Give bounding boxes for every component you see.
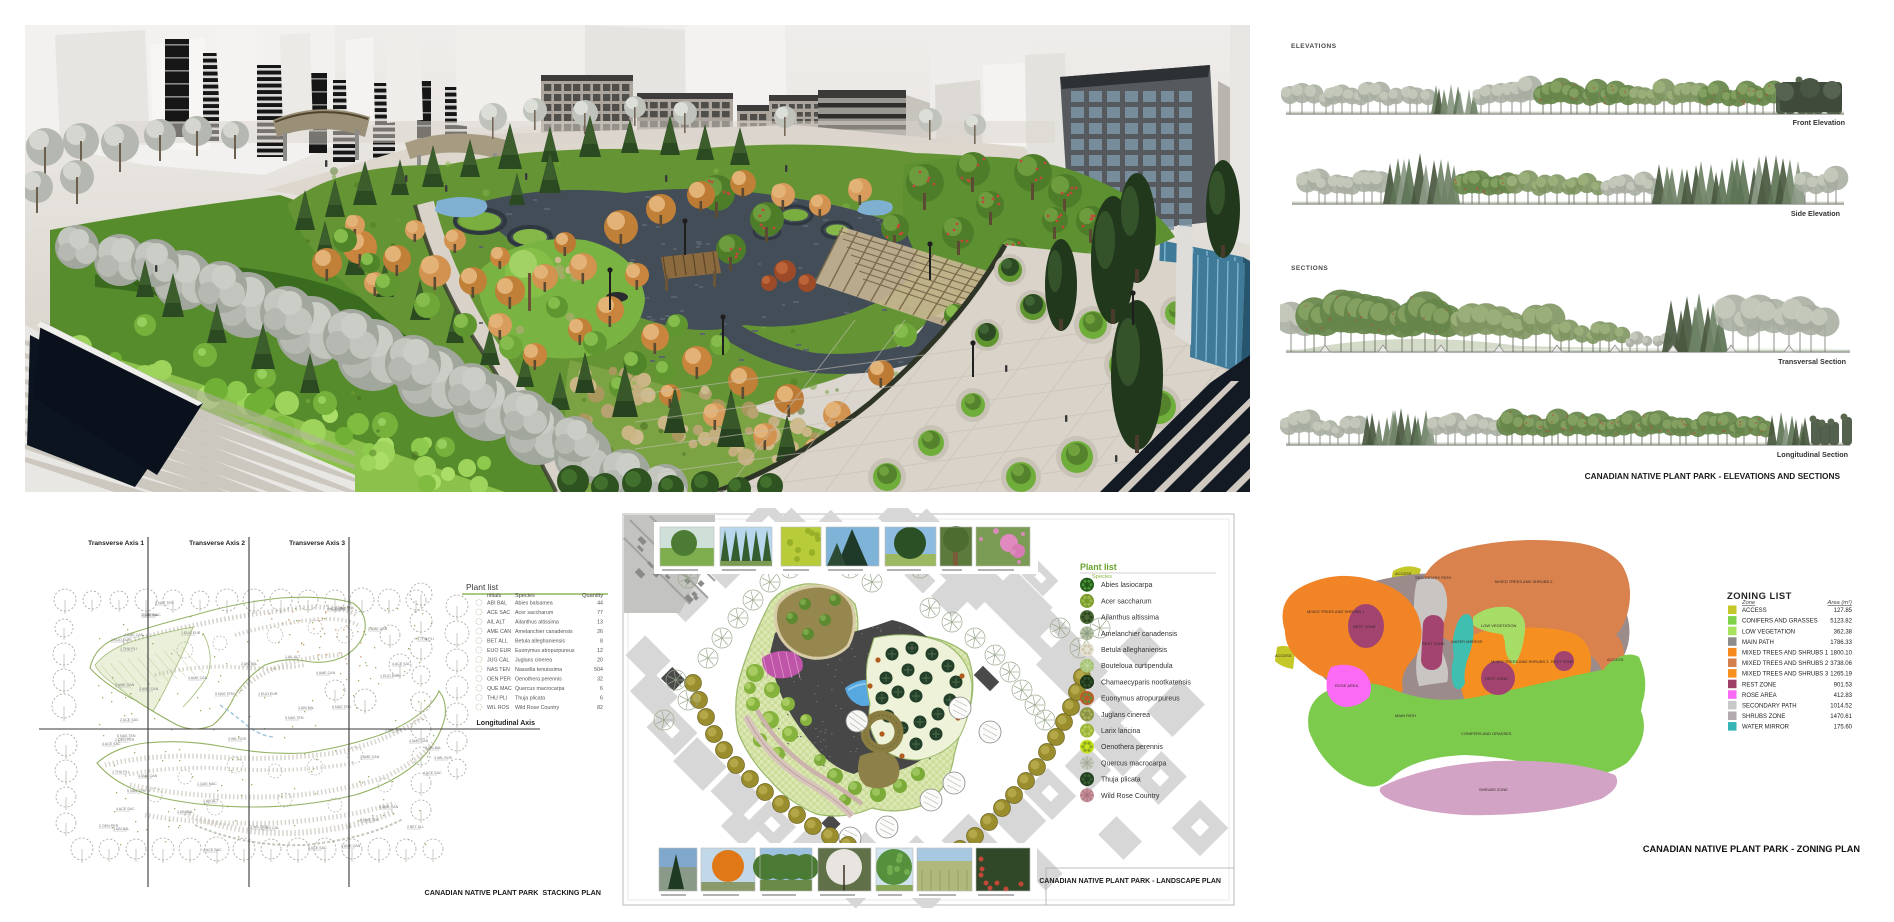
svg-text:2 OEN PER: 2 OEN PER: [99, 824, 119, 828]
svg-text:4 ACE SAC: 4 ACE SAC: [116, 807, 135, 811]
svg-text:MIXED TREES AND SHRUBS 2: MIXED TREES AND SHRUBS 2: [1495, 579, 1553, 584]
svg-text:3 ABI BAL: 3 ABI BAL: [425, 746, 441, 750]
svg-text:2 ACE SAC: 2 ACE SAC: [120, 718, 139, 722]
svg-text:ACCESS: ACCESS: [1395, 571, 1412, 576]
svg-text:ACE SAC: ACE SAC: [487, 610, 510, 616]
svg-text:4 ACE SAC: 4 ACE SAC: [102, 742, 121, 746]
svg-text:MIXED TREES AND SHRUBS 3: MIXED TREES AND SHRUBS 3: [1742, 672, 1829, 678]
svg-text:QUE MAC: QUE MAC: [487, 686, 512, 692]
svg-text:Quercus macrocarpa: Quercus macrocarpa: [1101, 760, 1166, 767]
svg-text:4 AME CAN: 4 AME CAN: [124, 633, 144, 637]
svg-text:Abies balsamea: Abies balsamea: [515, 601, 553, 607]
svg-text:REST ZONE: REST ZONE: [1742, 682, 1776, 688]
svg-text:4 ACE SAC: 4 ACE SAC: [203, 848, 222, 852]
svg-text:1470.61: 1470.61: [1830, 714, 1852, 720]
svg-text:ROSE AREA: ROSE AREA: [1742, 693, 1777, 699]
svg-text:Acer saccharum: Acer saccharum: [515, 610, 554, 616]
svg-text:3 WIL ROS: 3 WIL ROS: [228, 737, 247, 741]
svg-text:5 NAS TEN: 5 NAS TEN: [285, 716, 304, 720]
svg-text:Amelanchier canadensis: Amelanchier canadensis: [515, 629, 573, 635]
svg-text:EUO EUR: EUO EUR: [487, 648, 511, 654]
svg-text:Thuja plicata: Thuja plicata: [1101, 777, 1141, 784]
svg-text:5 NAS TEN: 5 NAS TEN: [155, 601, 174, 605]
svg-text:1800.10: 1800.10: [1830, 651, 1852, 657]
svg-text:Side Elevation: Side Elevation: [1791, 209, 1840, 218]
svg-text:Transverse Axis 2: Transverse Axis 2: [189, 540, 245, 547]
svg-text:1 EUO EUR: 1 EUO EUR: [258, 692, 278, 696]
svg-text:SHRUBS ZONE: SHRUBS ZONE: [1742, 714, 1785, 720]
svg-text:Thuja plicata: Thuja plicata: [515, 696, 545, 702]
svg-text:3 AME CAN: 3 AME CAN: [368, 627, 388, 631]
svg-text:1 EUO EUR: 1 EUO EUR: [111, 638, 131, 642]
svg-text:5 NAS TEN: 5 NAS TEN: [215, 692, 234, 696]
svg-text:MIXED TREES AND SHRUBS 3: MIXED TREES AND SHRUBS 3: [1491, 659, 1549, 664]
svg-text:1 THU PLI: 1 THU PLI: [120, 647, 137, 651]
svg-text:8: 8: [600, 639, 603, 645]
svg-text:REST ZONE: REST ZONE: [1551, 659, 1574, 664]
svg-text:WATER MIRROR: WATER MIRROR: [1451, 639, 1482, 644]
svg-text:ZONING LIST: ZONING LIST: [1727, 590, 1792, 601]
svg-text:5123.82: 5123.82: [1830, 619, 1852, 625]
svg-text:Species: Species: [515, 593, 535, 599]
svg-text:CANADIAN NATIVE PLANT PARK - L: CANADIAN NATIVE PLANT PARK - LANDSCAPE P…: [1039, 878, 1221, 885]
svg-text:1 THU PLI: 1 THU PLI: [112, 770, 129, 774]
svg-text:Transversal Section: Transversal Section: [1778, 357, 1846, 366]
svg-text:1 THU PLI: 1 THU PLI: [417, 637, 434, 641]
svg-text:6 NAS TEN: 6 NAS TEN: [360, 818, 379, 822]
svg-text:AME CAN: AME CAN: [487, 629, 511, 635]
svg-text:4 AME CAN: 4 AME CAN: [316, 671, 336, 675]
svg-text:CANADIAN NATIVE PLANT PARK - Z: CANADIAN NATIVE PLANT PARK - ZONING PLAN: [1643, 844, 1860, 854]
svg-text:Nassella tenuissima: Nassella tenuissima: [515, 667, 562, 673]
svg-text:nitials: nitials: [487, 593, 502, 599]
svg-text:Oenothera perennis: Oenothera perennis: [515, 677, 562, 683]
svg-text:13: 13: [597, 620, 603, 626]
svg-text:Juglans cinerea: Juglans cinerea: [1101, 712, 1150, 719]
svg-text:Euonymus atropurpureus: Euonymus atropurpureus: [1101, 696, 1180, 703]
svg-text:Plant list: Plant list: [1080, 562, 1117, 572]
svg-text:REST ZONE: REST ZONE: [1485, 676, 1508, 681]
svg-text:1 EUO EUR: 1 EUO EUR: [181, 631, 201, 635]
svg-text:Area (m²): Area (m²): [1827, 600, 1853, 606]
svg-text:REST ZONE: REST ZONE: [1422, 641, 1445, 646]
svg-text:Bouteloua curtipendula: Bouteloua curtipendula: [1101, 663, 1173, 670]
svg-text:Quercus macrocarpa: Quercus macrocarpa: [515, 686, 565, 692]
svg-text:5 NAS TEN: 5 NAS TEN: [127, 789, 146, 793]
svg-text:SECONDARY PATH: SECONDARY PATH: [1742, 704, 1797, 710]
svg-text:32: 32: [597, 677, 603, 683]
svg-text:44: 44: [597, 601, 603, 607]
svg-text:3 WIL ROS: 3 WIL ROS: [434, 756, 453, 760]
svg-text:SECTIONS: SECTIONS: [1291, 265, 1328, 272]
svg-text:Quantity: Quantity: [582, 593, 603, 599]
svg-text:412.83: 412.83: [1834, 693, 1853, 699]
svg-text:NAS TEN: NAS TEN: [487, 667, 510, 673]
svg-text:Chamaecyparis nootkatensis: Chamaecyparis nootkatensis: [1101, 679, 1191, 686]
svg-text:Transverse Axis 1: Transverse Axis 1: [88, 540, 144, 547]
svg-text:CANADIAN NATIVE PLANT PARK - E: CANADIAN NATIVE PLANT PARK - ELEVATIONS …: [1585, 471, 1841, 481]
svg-text:4 AME CAN: 4 AME CAN: [409, 739, 429, 743]
svg-text:3 AME CAN: 3 AME CAN: [360, 755, 380, 759]
svg-text:Wild Rose Country: Wild Rose Country: [515, 705, 560, 711]
svg-text:REST ZONE: REST ZONE: [1353, 624, 1376, 629]
svg-text:4 ACE SAC: 4 ACE SAC: [392, 662, 411, 666]
svg-text:901.53: 901.53: [1834, 682, 1853, 688]
svg-text:BET ALL: BET ALL: [487, 639, 508, 645]
svg-text:3 AME CAN: 3 AME CAN: [379, 805, 399, 809]
svg-text:Plant list: Plant list: [466, 582, 499, 592]
svg-text:1 QUE MAC: 1 QUE MAC: [197, 782, 217, 786]
svg-text:Species: Species: [1092, 574, 1112, 580]
svg-text:LOW VEGETATION: LOW VEGETATION: [1742, 629, 1795, 635]
svg-text:1 AIL ALT: 1 AIL ALT: [285, 655, 301, 659]
svg-text:Betula alleghaniensis: Betula alleghaniensis: [515, 639, 565, 645]
svg-text:Abies lasiocarpa: Abies lasiocarpa: [1101, 582, 1152, 589]
svg-text:175.60: 175.60: [1834, 725, 1853, 731]
svg-text:Transverse Axis 3: Transverse Axis 3: [289, 540, 345, 547]
svg-text:THU PLI: THU PLI: [487, 696, 507, 702]
svg-text:Larix laricina: Larix laricina: [1101, 728, 1140, 735]
svg-text:4 AME CAN: 4 AME CAN: [188, 676, 208, 680]
svg-text:OEN PER: OEN PER: [487, 677, 511, 683]
svg-text:6: 6: [600, 696, 603, 702]
svg-text:Juglans cinerea: Juglans cinerea: [515, 658, 552, 664]
svg-text:4 ACE SAC: 4 ACE SAC: [423, 771, 442, 775]
svg-text:3 ABI BAL: 3 ABI BAL: [298, 706, 314, 710]
svg-text:SHRUBS ZONE: SHRUBS ZONE: [1479, 787, 1508, 792]
svg-text:ELEVATIONS: ELEVATIONS: [1291, 43, 1337, 50]
svg-text:SECONDARY PATH: SECONDARY PATH: [1415, 575, 1451, 580]
svg-text:1 EUO EUR: 1 EUO EUR: [380, 674, 400, 678]
svg-text:1 QUE MAC: 1 QUE MAC: [141, 613, 161, 617]
svg-text:3 AME CAN: 3 AME CAN: [139, 687, 159, 691]
svg-text:JUG CAL: JUG CAL: [487, 658, 509, 664]
svg-text:Acer saccharum: Acer saccharum: [1101, 598, 1152, 605]
svg-text:MIXED TREES AND SHRUBS 1: MIXED TREES AND SHRUBS 1: [1742, 651, 1829, 657]
svg-text:MIXED TREES AND SHRUBS 2: MIXED TREES AND SHRUBS 2: [1742, 661, 1829, 667]
svg-text:Ailanthus altissima: Ailanthus altissima: [515, 620, 559, 626]
svg-text:504: 504: [594, 667, 603, 673]
svg-text:82: 82: [597, 705, 603, 711]
svg-text:Amelanchier canadensis: Amelanchier canadensis: [1101, 631, 1178, 638]
svg-text:ABI BAL: ABI BAL: [487, 601, 507, 607]
svg-text:LOW VEGETATION: LOW VEGETATION: [1481, 623, 1517, 628]
svg-text:ACCESS: ACCESS: [1742, 608, 1767, 614]
svg-text:ACCESS: ACCESS: [1607, 657, 1624, 662]
svg-text:MAIN PATH: MAIN PATH: [1742, 640, 1774, 646]
svg-text:MAIN PATH: MAIN PATH: [1395, 713, 1416, 718]
svg-text:WATER MIRROR: WATER MIRROR: [1742, 725, 1790, 731]
svg-text:CONIFERS AND GRASSES: CONIFERS AND GRASSES: [1461, 731, 1512, 736]
svg-text:Zone: Zone: [1741, 600, 1756, 606]
svg-text:6: 6: [600, 686, 603, 692]
svg-text:4 ACE SAC: 4 ACE SAC: [308, 846, 327, 850]
svg-text:Longitudinal Axis: Longitudinal Axis: [477, 720, 536, 727]
svg-text:127.85: 127.85: [1834, 608, 1853, 614]
svg-text:4 ACE SAC: 4 ACE SAC: [327, 607, 346, 611]
svg-text:2 OEN PER: 2 OEN PER: [115, 738, 135, 742]
svg-text:ACCESS: ACCESS: [1275, 653, 1292, 658]
svg-text:Longitudinal Section: Longitudinal Section: [1777, 450, 1848, 459]
svg-text:Betula alleghaniensis: Betula alleghaniensis: [1101, 647, 1168, 654]
svg-text:5 NAS TEN: 5 NAS TEN: [332, 705, 351, 709]
svg-text:1014.52: 1014.52: [1830, 704, 1852, 710]
svg-text:Ailanthus altissima: Ailanthus altissima: [1101, 615, 1159, 622]
svg-text:2 JUG CAL: 2 JUG CAL: [261, 826, 279, 830]
svg-text:WIL ROS: WIL ROS: [487, 705, 510, 711]
svg-text:1 AIL ALT: 1 AIL ALT: [203, 799, 219, 803]
svg-text:26: 26: [597, 629, 603, 635]
svg-text:Euonymus atropurpureus: Euonymus atropurpureus: [515, 648, 575, 654]
svg-text:3 AME CAN: 3 AME CAN: [115, 683, 135, 687]
svg-text:1786.33: 1786.33: [1830, 640, 1852, 646]
svg-text:MIXED TREES AND SHRUBS 1: MIXED TREES AND SHRUBS 1: [1307, 609, 1365, 614]
svg-text:3738.06: 3738.06: [1830, 661, 1852, 667]
svg-text:12: 12: [597, 648, 603, 654]
svg-text:Oenothera perennis: Oenothera perennis: [1101, 744, 1163, 751]
svg-text:Wild Rose Country: Wild Rose Country: [1101, 793, 1160, 800]
svg-text:Front Elevation: Front Elevation: [1793, 118, 1845, 127]
svg-text:20: 20: [597, 658, 603, 664]
svg-text:1265.19: 1265.19: [1830, 672, 1852, 678]
svg-text:362.38: 362.38: [1834, 629, 1853, 635]
svg-text:ROSE AREA: ROSE AREA: [1335, 683, 1358, 688]
svg-text:77: 77: [597, 610, 603, 616]
svg-text:AIL ALT: AIL ALT: [487, 620, 506, 626]
svg-text:3 ABI BAL: 3 ABI BAL: [177, 810, 193, 814]
svg-text:CONIFERS AND GRASSES: CONIFERS AND GRASSES: [1742, 619, 1818, 625]
svg-text:3 AME CAN: 3 AME CAN: [341, 844, 361, 848]
svg-text:2 BET ALL: 2 BET ALL: [407, 825, 424, 829]
svg-text:CANADIAN NATIVE PLANT PARK ST: CANADIAN NATIVE PLANT PARK STACKING PLAN: [425, 888, 602, 897]
